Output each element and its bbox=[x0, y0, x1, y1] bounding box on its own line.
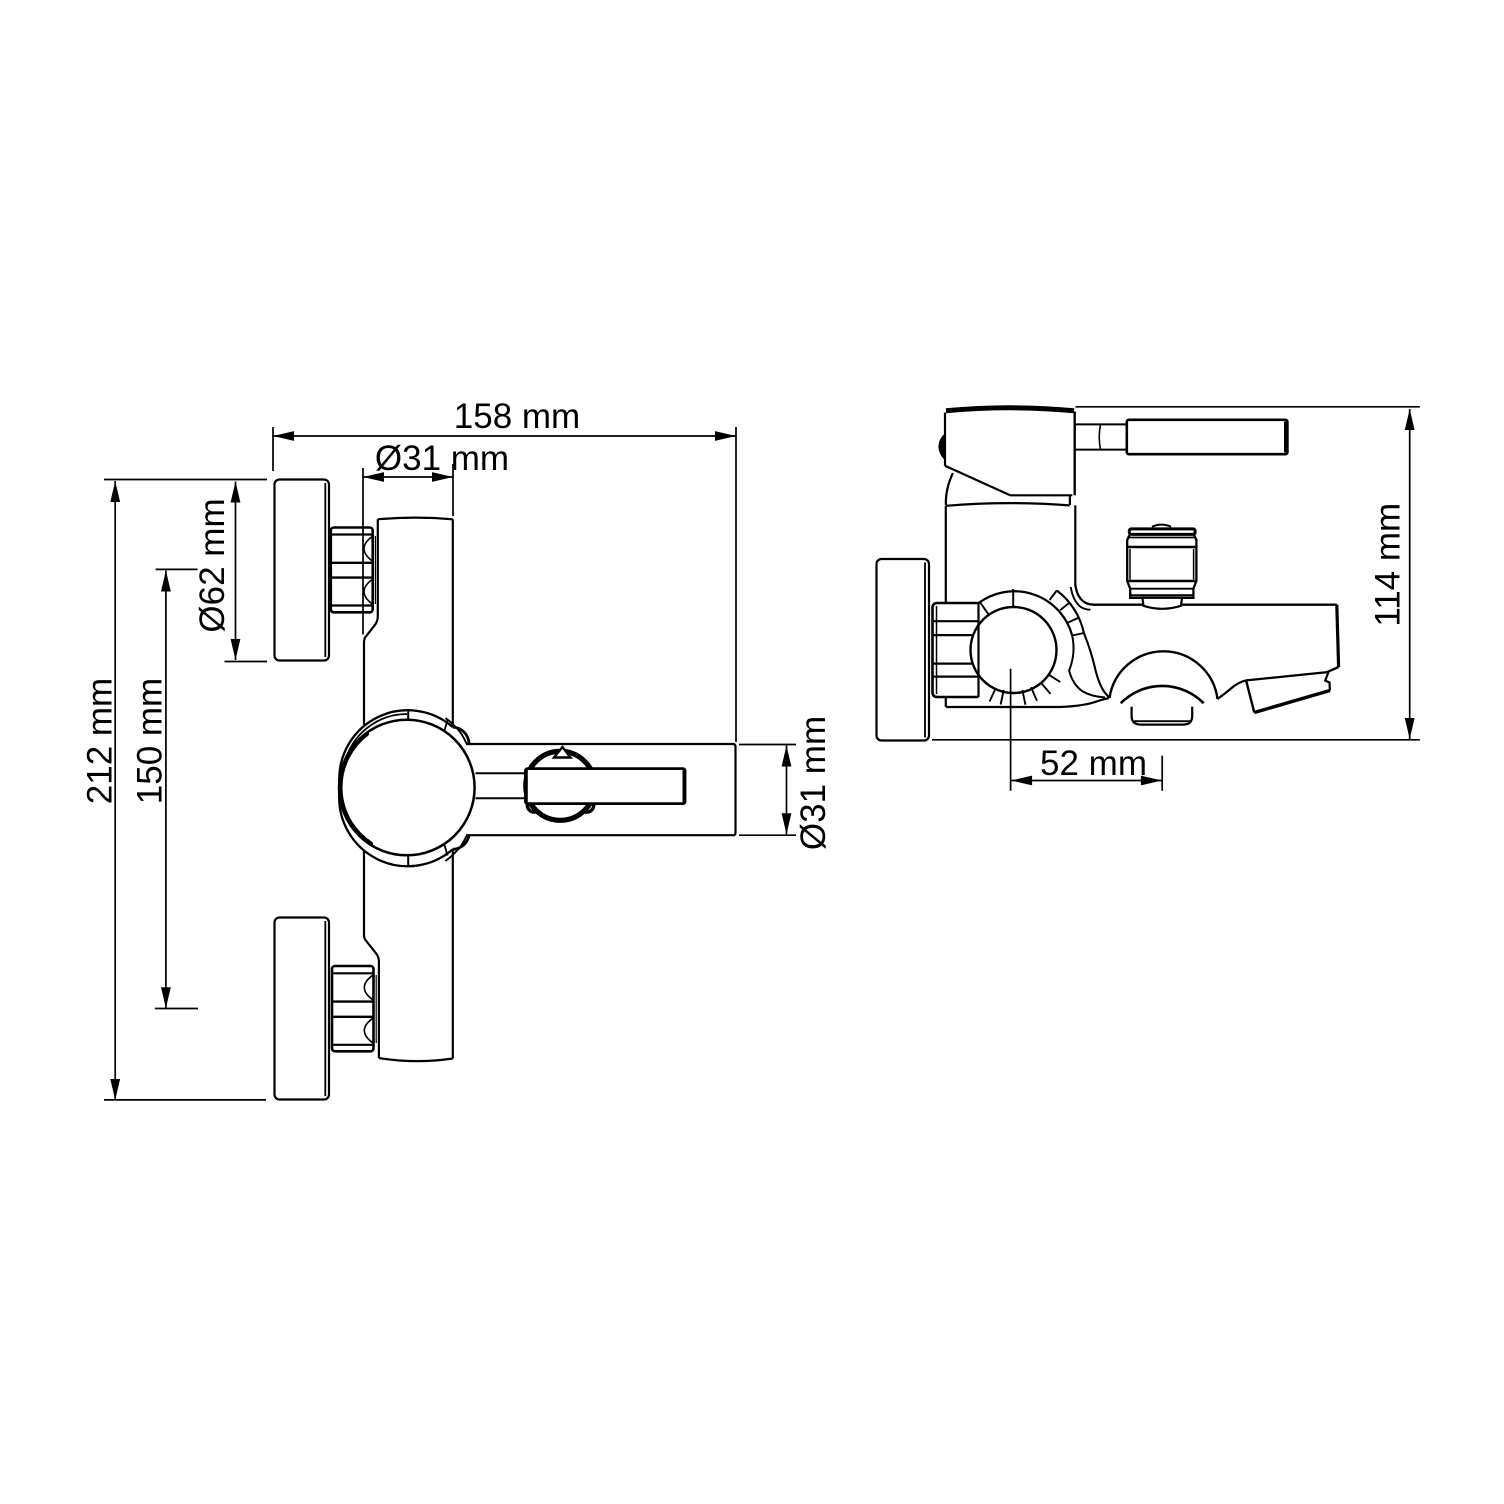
svg-text:Ø62 mm: Ø62 mm bbox=[193, 498, 232, 632]
svg-text:114 mm: 114 mm bbox=[1369, 503, 1408, 627]
svg-text:158 mm: 158 mm bbox=[454, 397, 580, 436]
svg-text:52 mm: 52 mm bbox=[1040, 744, 1147, 783]
svg-text:212 mm: 212 mm bbox=[81, 678, 120, 804]
svg-text:150 mm: 150 mm bbox=[131, 678, 170, 804]
svg-text:Ø31 mm: Ø31 mm bbox=[375, 439, 509, 478]
svg-text:Ø31 mm: Ø31 mm bbox=[794, 716, 833, 850]
